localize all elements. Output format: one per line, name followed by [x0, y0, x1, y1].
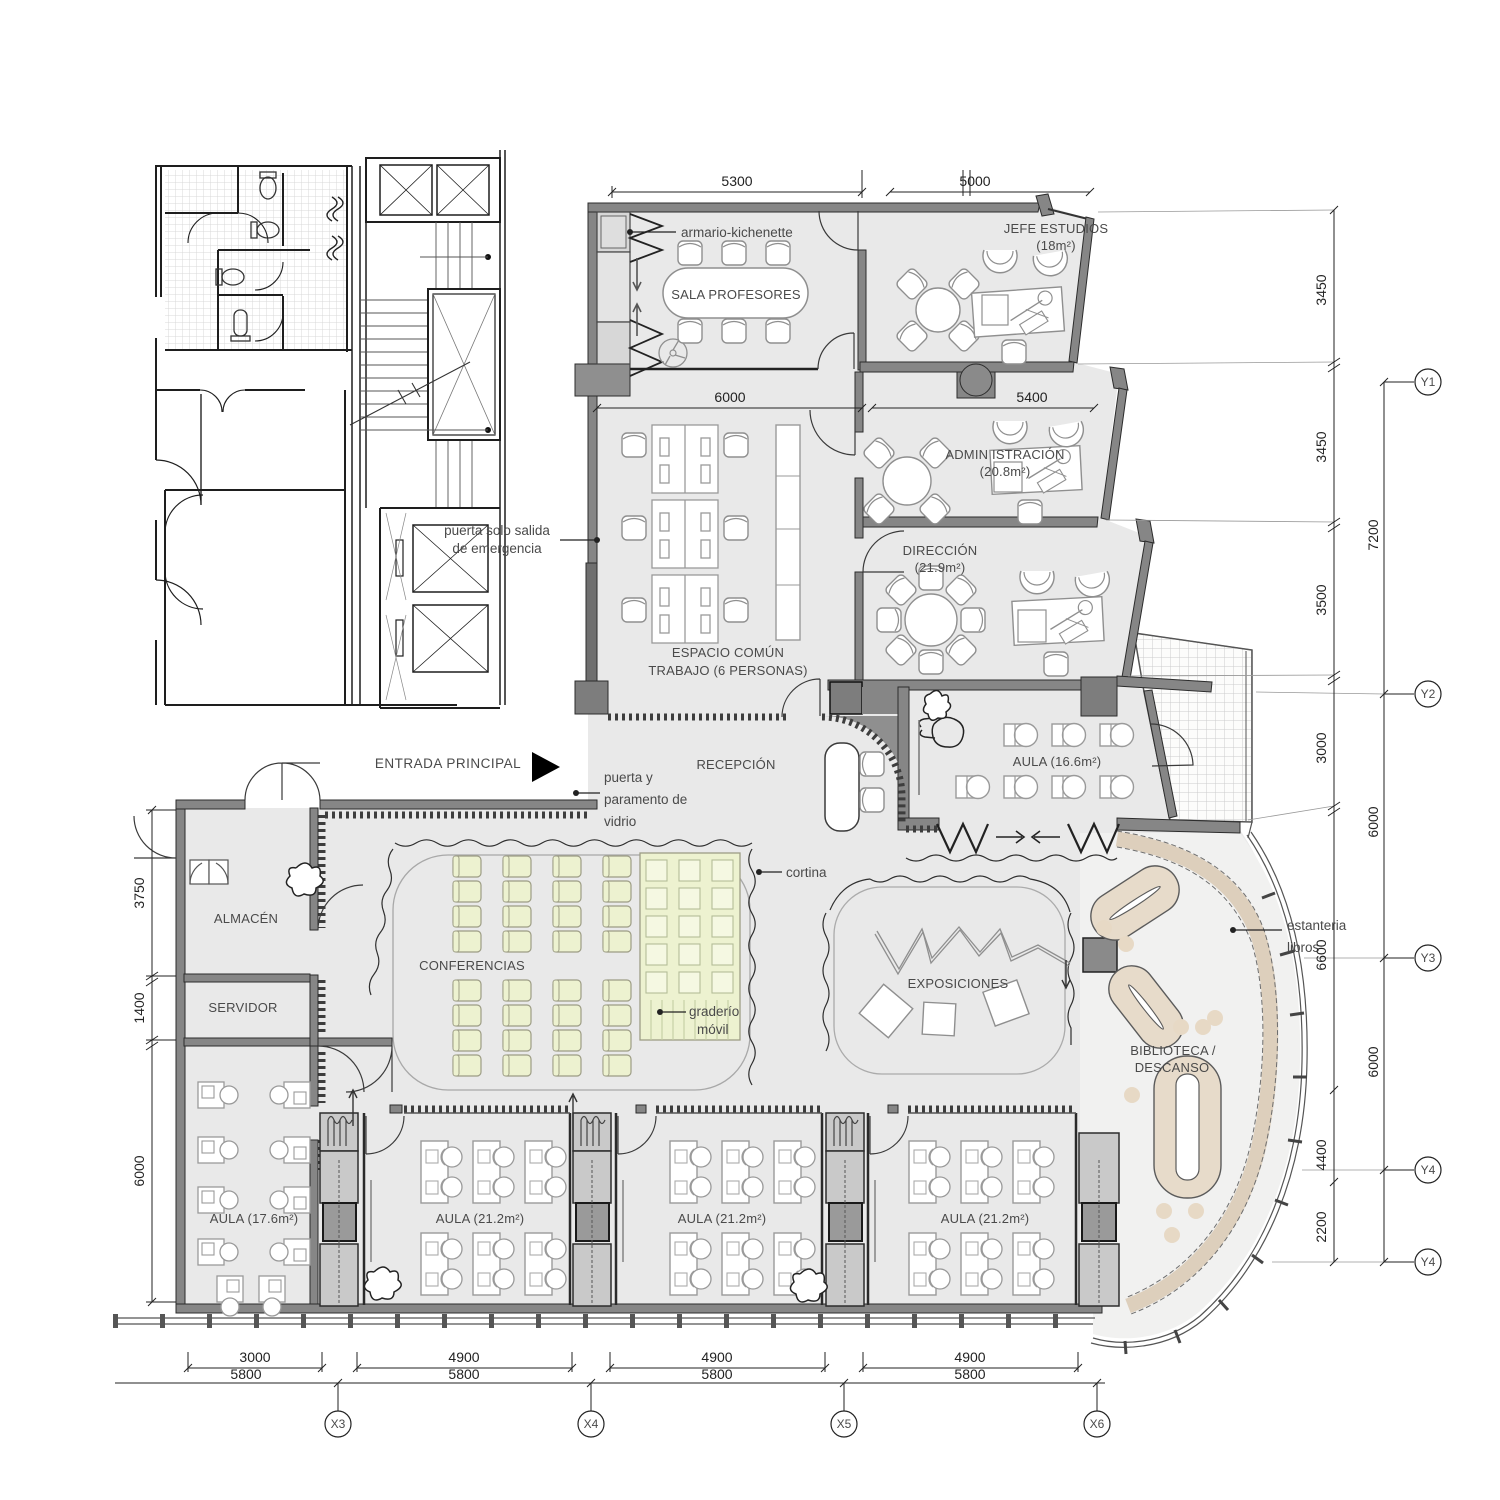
svg-text:5800: 5800: [954, 1366, 985, 1382]
svg-text:5400: 5400: [1016, 389, 1047, 405]
svg-text:(21.9m²): (21.9m²): [915, 560, 966, 575]
svg-text:BIBLIOTECA /: BIBLIOTECA /: [1130, 1043, 1216, 1058]
svg-text:X4: X4: [584, 1417, 599, 1431]
svg-text:1400: 1400: [131, 992, 147, 1023]
svg-text:3450: 3450: [1313, 274, 1329, 305]
svg-text:5800: 5800: [448, 1366, 479, 1382]
svg-text:4400: 4400: [1313, 1139, 1329, 1170]
svg-text:5800: 5800: [701, 1366, 732, 1382]
svg-text:ESPACIO COMÚN: ESPACIO COMÚN: [672, 645, 784, 660]
svg-text:7200: 7200: [1365, 519, 1381, 550]
svg-text:TRABAJO (6 PERSONAS): TRABAJO (6 PERSONAS): [648, 663, 807, 678]
svg-text:6600: 6600: [1313, 939, 1329, 970]
svg-text:ADMIN ISTRACIÓN: ADMIN ISTRACIÓN: [945, 447, 1064, 462]
svg-text:4900: 4900: [448, 1349, 479, 1365]
svg-text:AULA (21.2m²): AULA (21.2m²): [678, 1211, 767, 1226]
svg-text:Y3: Y3: [1421, 951, 1436, 965]
svg-text:EXPOSICIONES: EXPOSICIONES: [908, 976, 1009, 991]
svg-text:Y4: Y4: [1421, 1255, 1436, 1269]
svg-text:Y1: Y1: [1421, 375, 1436, 389]
svg-text:DESCANSO: DESCANSO: [1135, 1060, 1210, 1075]
svg-text:3000: 3000: [239, 1349, 270, 1365]
svg-text:puerta y: puerta y: [604, 770, 653, 785]
svg-text:estanteria: estanteria: [1287, 918, 1347, 933]
svg-text:vidrio: vidrio: [604, 814, 636, 829]
svg-text:6000: 6000: [714, 389, 745, 405]
svg-text:puerta solo salida: puerta solo salida: [444, 523, 550, 538]
svg-text:(18m²): (18m²): [1036, 238, 1075, 253]
svg-text:JEFE ESTUDIOS: JEFE ESTUDIOS: [1004, 221, 1109, 236]
svg-text:6000: 6000: [1365, 1046, 1381, 1077]
svg-text:2200: 2200: [1313, 1211, 1329, 1242]
svg-text:5800: 5800: [230, 1366, 261, 1382]
svg-text:X6: X6: [1090, 1417, 1105, 1431]
svg-text:AULA (21.2m²): AULA (21.2m²): [436, 1211, 525, 1226]
svg-text:AULA (21.2m²): AULA (21.2m²): [941, 1211, 1030, 1226]
svg-text:graderío: graderío: [689, 1004, 739, 1019]
svg-text:6000: 6000: [1365, 806, 1381, 837]
svg-text:3750: 3750: [131, 877, 147, 908]
svg-text:armario-kichenette: armario-kichenette: [681, 225, 793, 240]
svg-text:X3: X3: [331, 1417, 346, 1431]
svg-text:Y4: Y4: [1421, 1163, 1436, 1177]
svg-text:móvil: móvil: [697, 1022, 729, 1037]
svg-text:6000: 6000: [131, 1155, 147, 1186]
svg-text:SERVIDOR: SERVIDOR: [208, 1000, 277, 1015]
svg-text:4900: 4900: [954, 1349, 985, 1365]
svg-text:AULA (17.6m²): AULA (17.6m²): [210, 1211, 299, 1226]
svg-text:Y2: Y2: [1421, 687, 1436, 701]
svg-text:CONFERENCIAS: CONFERENCIAS: [419, 958, 525, 973]
svg-text:RECEPCIÓN: RECEPCIÓN: [696, 757, 775, 772]
svg-text:3450: 3450: [1313, 431, 1329, 462]
svg-text:3000: 3000: [1313, 732, 1329, 763]
svg-text:5300: 5300: [721, 173, 752, 189]
svg-text:paramento de: paramento de: [604, 792, 687, 807]
svg-text:5000: 5000: [959, 173, 990, 189]
svg-text:(20.8m²): (20.8m²): [980, 464, 1031, 479]
svg-text:cortina: cortina: [786, 865, 827, 880]
svg-text:AULA (16.6m²): AULA (16.6m²): [1013, 754, 1102, 769]
svg-text:X5: X5: [837, 1417, 852, 1431]
svg-text:DIRECCIÓN: DIRECCIÓN: [903, 543, 978, 558]
svg-text:SALA PROFESORES: SALA PROFESORES: [671, 287, 801, 302]
svg-text:ALMACÉN: ALMACÉN: [214, 911, 278, 926]
svg-text:4900: 4900: [701, 1349, 732, 1365]
svg-text:de emergencia: de emergencia: [452, 541, 542, 556]
svg-text:ENTRADA PRINCIPAL: ENTRADA PRINCIPAL: [375, 756, 521, 771]
svg-text:3500: 3500: [1313, 584, 1329, 615]
